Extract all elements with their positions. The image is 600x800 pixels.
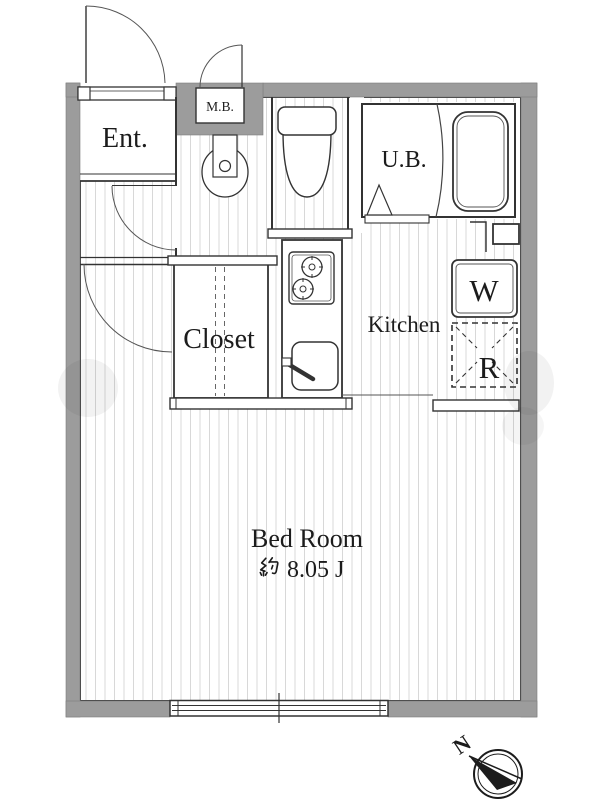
bathtub-icon [453, 112, 508, 211]
refrigerator-label: R [479, 350, 500, 385]
floor-plan-canvas: M.B. U.B. [0, 0, 600, 800]
meter-box-door-arc [200, 45, 242, 87]
toilet-tank [278, 107, 336, 135]
floor-plan-page: M.B. U.B. [0, 0, 600, 800]
washer-label: W [469, 273, 499, 308]
unit-bath-label: U.B. [381, 147, 426, 173]
meter-box-label: M.B. [206, 99, 234, 114]
closet-label: Closet [183, 324, 255, 355]
unit-bath-threshold [365, 215, 429, 223]
entrance-door-arc [86, 6, 165, 83]
entrance-door [78, 6, 176, 100]
kitchen-sink-icon [292, 342, 338, 390]
entrance-label: Ent. [102, 123, 148, 154]
bedroom-area-value: 8.05 J [287, 557, 344, 583]
pipe-space-box [493, 224, 519, 244]
faucet-handle [282, 358, 291, 366]
bedroom-label: Bed Room [251, 524, 363, 553]
compass-icon: N [448, 730, 522, 798]
closet-top-wall [168, 256, 277, 265]
toilet-room-wall [268, 229, 352, 238]
kitchen-counter [282, 240, 342, 398]
compass-north-label: N [448, 730, 475, 760]
washbasin-drain [220, 161, 231, 172]
kitchen-label: Kitchen [368, 312, 441, 337]
